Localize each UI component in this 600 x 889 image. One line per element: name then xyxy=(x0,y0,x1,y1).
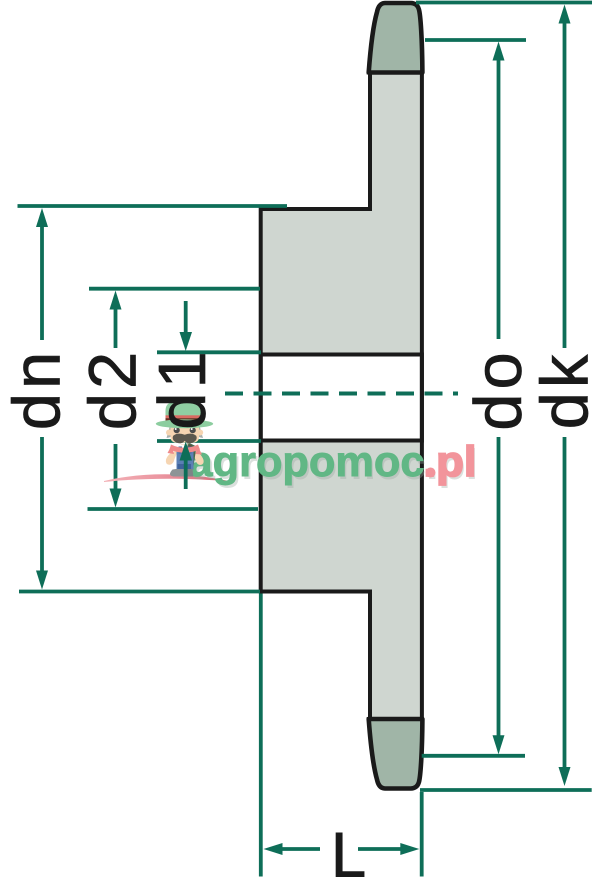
svg-text:dk: dk xyxy=(528,351,600,430)
svg-text:agropomoc: agropomoc xyxy=(189,439,425,486)
svg-text:dn: dn xyxy=(0,348,75,431)
svg-text:L: L xyxy=(331,821,366,889)
svg-text:do: do xyxy=(461,348,536,431)
svg-text:d1: d1 xyxy=(145,347,220,430)
svg-text:d2: d2 xyxy=(76,348,151,431)
svg-text:.pl: .pl xyxy=(424,439,477,486)
